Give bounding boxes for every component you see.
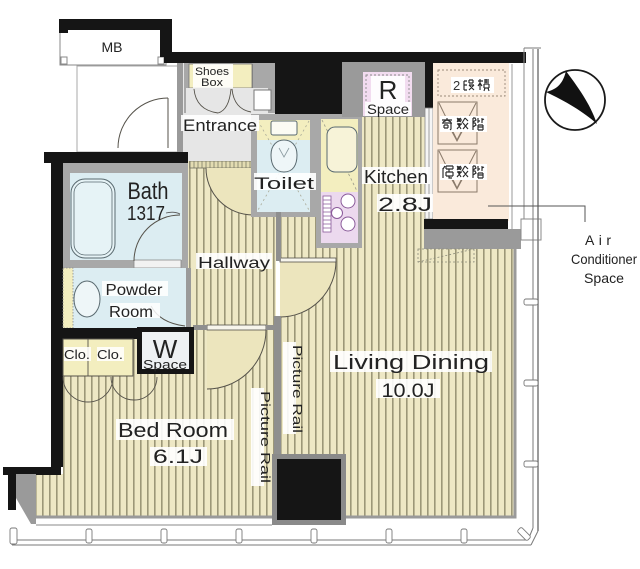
svg-text:Bath: Bath [128, 178, 169, 205]
svg-text:Picture Rail: Picture Rail [290, 345, 305, 433]
svg-text:1317: 1317 [127, 203, 165, 225]
svg-text:Conditioner: Conditioner [571, 251, 637, 267]
svg-text:Kitchen: Kitchen [364, 167, 428, 187]
svg-text:Space: Space [584, 270, 624, 286]
svg-text:Picture Rail: Picture Rail [258, 391, 273, 483]
svg-text:Hallway: Hallway [198, 255, 270, 272]
svg-text:Air: Air [585, 232, 611, 248]
svg-text:Clo.: Clo. [64, 347, 90, 362]
svg-text:Space: Space [143, 357, 187, 372]
svg-text:Clo.: Clo. [97, 347, 123, 362]
svg-text:2: 2 [453, 78, 460, 93]
svg-text:6.1J: 6.1J [153, 447, 203, 468]
svg-text:2.8J: 2.8J [378, 195, 432, 216]
svg-text:Entrance: Entrance [183, 116, 257, 135]
svg-text:Powder: Powder [106, 282, 164, 299]
svg-text:Toilet: Toilet [254, 174, 314, 193]
svg-text:Box: Box [201, 77, 224, 89]
svg-text:Room: Room [109, 304, 153, 321]
svg-text:10.0J: 10.0J [382, 381, 435, 402]
svg-text:MB: MB [102, 39, 123, 55]
svg-text:Living Dining: Living Dining [333, 352, 489, 374]
svg-text:Bed Room: Bed Room [118, 420, 228, 442]
svg-text:Space: Space [367, 101, 409, 117]
